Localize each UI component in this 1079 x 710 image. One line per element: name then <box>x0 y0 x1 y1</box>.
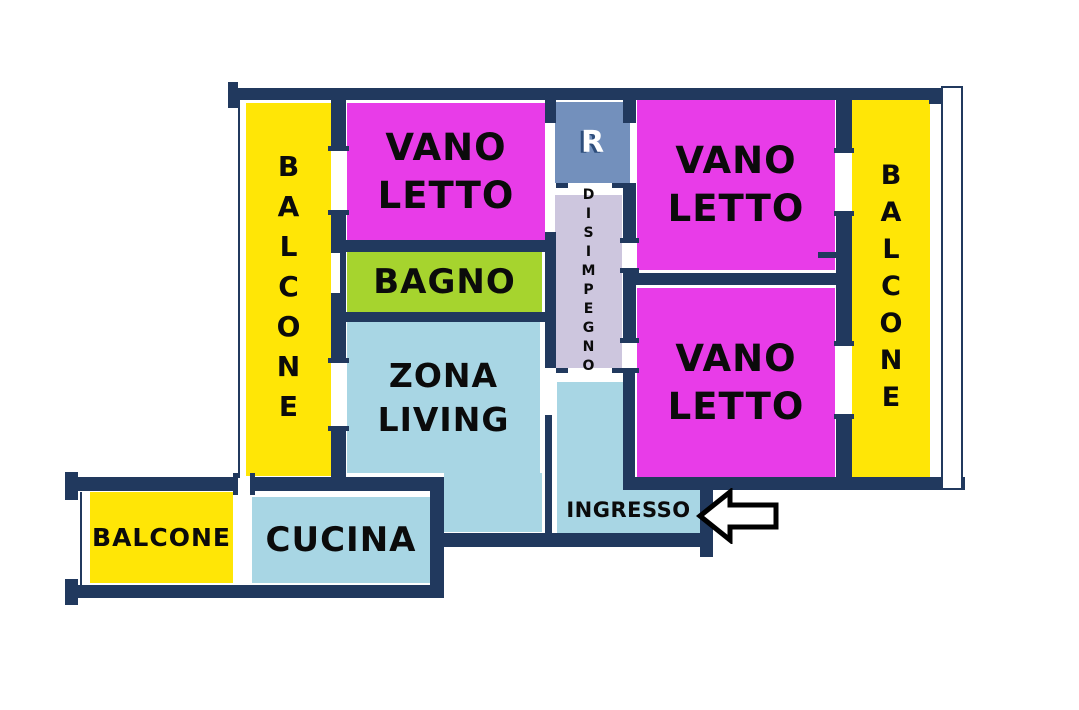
wall-mid-left-top <box>545 100 556 123</box>
door-tick <box>834 211 854 216</box>
room-balcony-right-label: BALCONE <box>876 160 907 419</box>
room-bedroom-top-right: VANO LETTO <box>637 100 835 270</box>
room-balcony-right: BALCONE <box>852 100 930 478</box>
room-bathroom-label: BAGNO <box>373 262 516 302</box>
door-tick <box>834 414 854 419</box>
door-tick <box>620 268 639 273</box>
wall-bathroom-living <box>346 312 556 322</box>
room-riser: R <box>555 102 630 183</box>
door-tick <box>556 183 568 188</box>
room-bedroom-bottom-right-label: VANO LETTO <box>668 335 805 431</box>
door-tick <box>818 252 836 258</box>
wall-left-column-c <box>331 430 346 477</box>
door-tick <box>834 341 854 346</box>
room-balcony-bottom-left: BALCONE <box>90 492 233 583</box>
wall-kitchen-top-a <box>65 477 237 491</box>
door-tick <box>620 338 639 343</box>
wall-living-entrance <box>545 415 552 533</box>
wall-kitchen-bottom <box>65 585 444 598</box>
wall-mid-left <box>545 232 556 368</box>
room-kitchen-label: CUCINA <box>266 520 417 560</box>
floor-plan: BALCONE VANO LETTO BAGNO ZONA LIVING R D… <box>0 0 1079 710</box>
room-living-label: ZONA LIVING <box>378 354 510 442</box>
railing-balcony-right <box>941 86 963 490</box>
room-entrance-label: INGRESSO <box>566 498 690 522</box>
room-bedroom-top-left: VANO LETTO <box>347 103 545 240</box>
wall-right-column-c <box>836 418 852 478</box>
room-balcony-left: BALCONE <box>246 103 331 476</box>
room-balcony-bottom-left-label: BALCONE <box>92 523 231 552</box>
room-hallway-label: DISIMPEGNO <box>581 187 597 377</box>
wall-top-step-right <box>929 88 941 104</box>
room-kitchen: CUCINA <box>252 497 430 583</box>
door-tick <box>612 368 624 373</box>
room-bathroom: BAGNO <box>347 252 542 312</box>
railing-balcony-bottom-left <box>80 492 82 586</box>
wall-bottom-right <box>623 477 965 490</box>
railing-balcony-left <box>238 96 240 478</box>
wall-kitchen-bottom-cap <box>65 579 78 605</box>
wall-entrance-bottom <box>438 533 713 547</box>
door-tick <box>834 148 854 153</box>
wall-bedroom-bathroom <box>346 240 556 252</box>
wall-corridor-right <box>623 372 635 490</box>
door-tick <box>328 210 349 215</box>
door-tick <box>556 368 568 373</box>
room-living-extension <box>444 473 542 532</box>
room-bedroom-top-left-label: VANO LETTO <box>378 124 515 220</box>
wall-kitchen-top-b <box>250 477 444 491</box>
door-tick <box>612 183 624 188</box>
wall-right-column-a <box>836 100 852 152</box>
wall-left-column-a <box>331 100 346 150</box>
room-riser-label: R <box>581 125 604 160</box>
wall-kitchen-right <box>430 491 444 598</box>
wall-kitchen-top-cap <box>65 472 78 500</box>
wall-right-column-b <box>836 215 852 345</box>
door-tick <box>328 426 349 431</box>
room-bedroom-top-right-label: VANO LETTO <box>668 137 805 233</box>
entrance-arrow-icon <box>695 488 781 544</box>
door-tick <box>620 238 639 243</box>
wall-mid-right-top <box>623 100 636 123</box>
room-entrance-corridor <box>557 382 632 487</box>
wall-top <box>228 88 940 100</box>
door-notch-bathroom-balcony <box>331 253 340 293</box>
room-entrance: INGRESSO <box>557 487 700 533</box>
door-tick <box>328 146 349 151</box>
room-hallway: DISIMPEGNO <box>555 195 622 368</box>
room-living: ZONA LIVING <box>347 322 540 473</box>
room-bedroom-bottom-right: VANO LETTO <box>637 288 835 477</box>
door-tick <box>328 358 349 363</box>
wall-mid-right-1 <box>623 183 636 242</box>
wall-bedrooms-divider <box>630 273 852 285</box>
room-balcony-left-label: BALCONE <box>272 150 305 430</box>
door-tick <box>250 473 255 495</box>
wall-top-cap-left <box>228 82 238 108</box>
entrance-arrow-shape <box>700 492 776 540</box>
